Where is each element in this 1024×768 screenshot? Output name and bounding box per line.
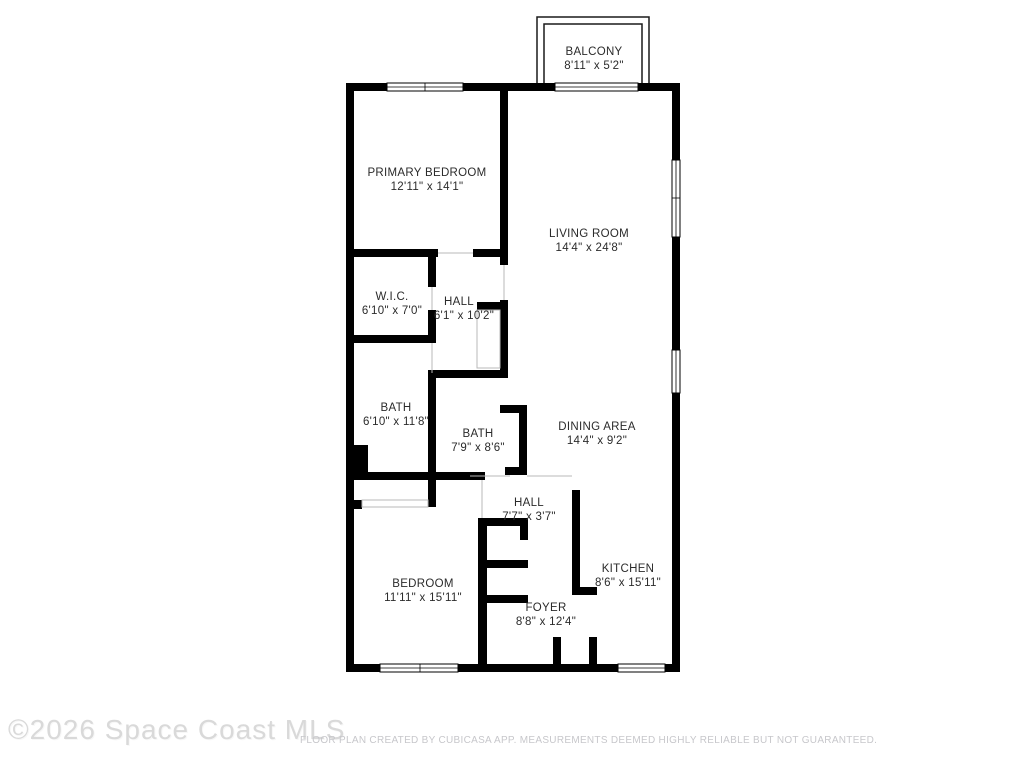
room-label-wic: W.I.C. [375,291,408,303]
window [672,160,680,237]
wall-segment [346,249,438,257]
wall-segment [354,500,362,509]
room-label-bedroom: BEDROOM [392,578,454,590]
wall-segment [478,518,487,664]
floor-plan-drawing: BALCONY 8'11" x 5'2" PRIMARY BEDROOM 12'… [0,0,1024,768]
wall-segment [672,83,680,160]
room-label-bath-left: BATH [380,402,411,414]
window [387,83,463,91]
wall-segment [500,83,508,265]
room-dims-hall-upper: 6'1" x 10'2" [434,310,494,322]
room-dims-kitchen: 8'6" x 15'11" [595,577,661,589]
balcony-sliding-door [555,83,638,91]
wall-segment [572,490,580,595]
room-label-hall-lower: HALL [514,497,544,509]
room-label-kitchen: KITCHEN [602,563,655,575]
wall-segment [519,405,527,475]
room-dims-foyer: 8'8" x 12'4" [516,616,576,628]
wall-segment [473,249,508,257]
room-dims-wic: 6'10" x 7'0" [362,305,422,317]
wall-segment [346,83,354,672]
wall-segment [458,664,618,672]
room-dims-balcony: 8'11" x 5'2" [564,60,623,72]
wall-segment [428,480,436,507]
wall-segment [428,255,436,287]
entry-door [618,664,665,672]
wall-segment [346,335,436,343]
wall-segment [346,664,380,672]
wall-segment [428,370,508,378]
window [380,664,458,672]
room-label-balcony: BALCONY [565,46,622,58]
room-dims-living-room: 14'4" x 24'8" [556,242,623,254]
wall-segment [487,595,528,603]
wall-segment [463,83,555,91]
wall-segment [487,560,528,568]
room-label-living-room: LIVING ROOM [549,228,629,240]
room-dims-hall-lower: 7'7" x 3'7" [502,511,556,523]
wall-segment [500,300,508,378]
room-dims-bath-right: 7'9" x 8'6" [451,442,505,454]
room-dims-bedroom: 11'11" x 15'11" [384,592,462,604]
room-dims-primary-bedroom: 12'11" x 14'1" [391,181,464,193]
wall-segment [572,587,597,595]
bedroom-closet-doors [362,500,428,507]
floor-plan-page: BALCONY 8'11" x 5'2" PRIMARY BEDROOM 12'… [0,0,1024,768]
column [348,445,368,477]
room-label-primary-bedroom: PRIMARY BEDROOM [367,167,486,179]
room-label-dining-area: DINING AREA [558,421,635,433]
room-label-bath-right: BATH [462,428,493,440]
wall-segment [553,637,561,664]
wall-segment [672,393,680,672]
disclaimer-text: FLOOR PLAN CREATED BY CUBICASA APP. MEAS… [300,735,877,746]
room-dims-bath-left: 6'10" x 11'8" [363,416,429,428]
room-dims-dining-area: 14'4" x 9'2" [567,435,627,447]
wall-segment [428,373,436,480]
window [672,350,680,393]
room-label-foyer: FOYER [525,602,566,614]
wall-segment [672,237,680,350]
wall-segment [589,637,597,664]
copyright-watermark: ©2026 Space Coast MLS [8,714,345,746]
wall-segment [505,467,527,475]
wall-segment [477,302,508,310]
room-label-hall-upper: HALL [444,296,474,308]
